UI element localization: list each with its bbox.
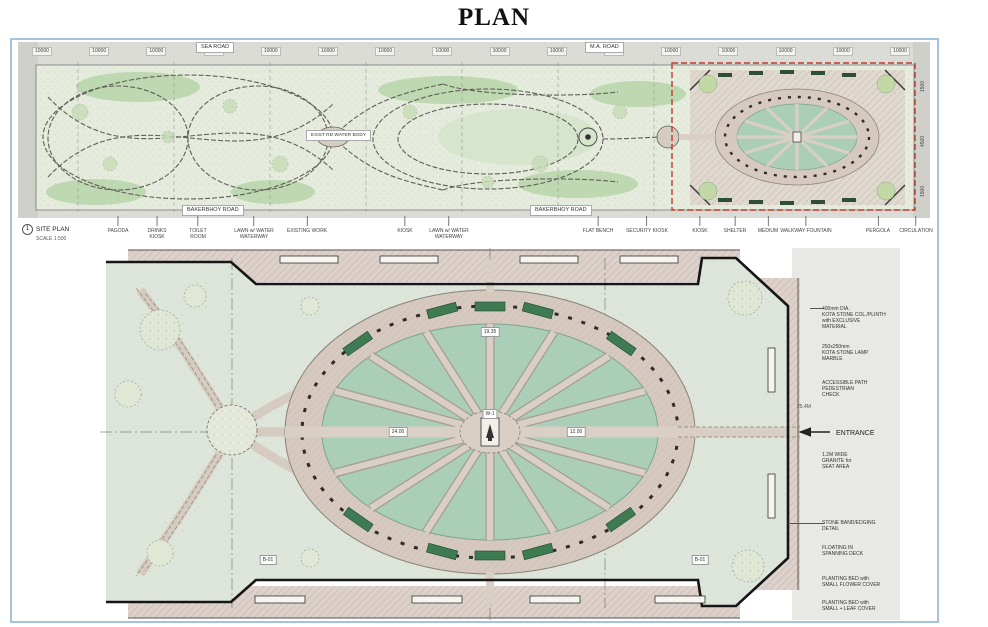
note-block: 250x250mmKOTA STONE LAMPMARBLE xyxy=(822,344,922,362)
road-label-sea-road: SEA ROAD xyxy=(196,42,234,53)
legend-item: MEDIUM xyxy=(758,216,778,234)
road-label-bakerbhoy-right: BAKERBHOY ROAD xyxy=(530,205,592,216)
dimension-label: 10000 xyxy=(318,47,338,56)
legend-item: KIOSK xyxy=(692,216,707,234)
plan-chip: B-01 xyxy=(692,555,709,565)
legend-item: SHELTER xyxy=(724,216,747,234)
note-block: FLOATING INSPANNING DECK xyxy=(822,545,922,557)
legend-item: EXISTING WORK xyxy=(287,216,327,234)
road-label-ma-road: M.A. ROAD xyxy=(585,42,624,53)
legend-item: LAWN w/ WATERWATERWAY xyxy=(429,216,469,240)
legend-item: FLAT BENCH xyxy=(583,216,614,234)
plan-chip: B-01 xyxy=(260,555,277,565)
plan-chip: 24.00 xyxy=(389,427,408,437)
dimension-label: 10000 xyxy=(432,47,452,56)
legend-item: KIOSK xyxy=(397,216,412,234)
plan-chip: W-1 xyxy=(482,409,497,419)
plan-chip: 12.00 xyxy=(567,427,586,437)
note-leader-line-2 xyxy=(810,308,824,309)
note-block: ACCESSIBLE PATHPEDESTRIANCHECK xyxy=(822,380,922,398)
road-label-bakerbhoy-left: BAKERBHOY ROAD xyxy=(182,205,244,216)
legend-item: TOILETROOM xyxy=(189,216,206,240)
site-plan-strip-drawing: 1500 4500 1500 xyxy=(18,42,930,218)
dimension-row: 1000010000100001000010000100001000010000… xyxy=(32,47,910,56)
water-body-label: EXIST RD WATER BODY xyxy=(306,130,371,141)
detail-plan-drawing: ENTRANCE xyxy=(100,248,900,620)
legend-item: SECURITY KIOSK xyxy=(626,216,668,234)
dimension-label: 10000 xyxy=(375,47,395,56)
plan-chip: 19.35 xyxy=(481,327,500,337)
dimension-label: 10000 xyxy=(661,47,681,56)
note-block: 400mm DIA.KOTA STONE COL./PLINTHwith EXC… xyxy=(822,306,922,330)
dimension-label: 10000 xyxy=(261,47,281,56)
note-block: STONE BAND/EDGINGDETAIL xyxy=(822,520,922,532)
note-block: PLANTING BED withSMALL FLOWER COVER xyxy=(822,576,922,588)
legend-item: LAWN w/ WATERWATERWAY xyxy=(234,216,274,240)
legend-item: DRINKSKIOSK xyxy=(148,216,167,240)
plan-sheet-page: PLAN xyxy=(0,0,988,627)
note-block: PLANTING BED withSMALL + LEAF COVER xyxy=(822,600,922,612)
dimension-label: 10000 xyxy=(776,47,796,56)
legend-item: PAGODA xyxy=(107,216,128,234)
dimension-label: 10000 xyxy=(32,47,52,56)
note-block: 1.2M WIDEGRANITE forSEAT AREA xyxy=(822,452,922,470)
dimension-label: 10000 xyxy=(718,47,738,56)
note-leader-line xyxy=(788,523,824,524)
dimension-label: 10000 xyxy=(89,47,109,56)
notes-column: 400mm DIA.KOTA STONE COL./PLINTHwith EXC… xyxy=(822,0,932,627)
dimension-label: 10000 xyxy=(490,47,510,56)
dimension-label: 10000 xyxy=(146,47,166,56)
planting-circle-texture xyxy=(207,405,257,455)
dimension-chip: 25.4M xyxy=(797,404,811,410)
dimension-label: 10000 xyxy=(547,47,567,56)
